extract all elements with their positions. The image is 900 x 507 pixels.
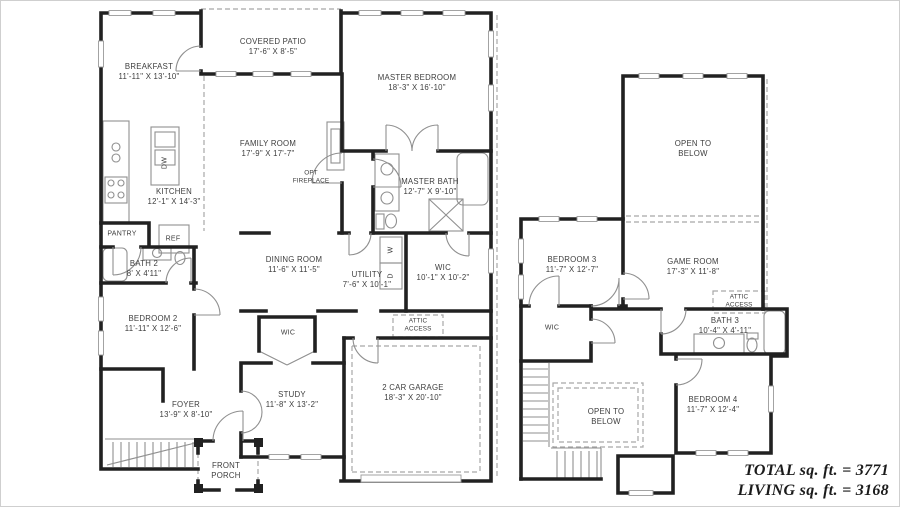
total-sqft-text: TOTAL sq. ft. = 3771 [744, 462, 889, 480]
floor-plan-drawing [1, 1, 899, 506]
dashed-lines [198, 9, 767, 481]
porch-columns [194, 438, 263, 493]
living-sqft-text: LIVING sq. ft. = 3168 [738, 482, 889, 500]
floor-plan-image: COVERED PATIO 17'-6" X 8'-5" BREAKFAST 1… [0, 0, 900, 507]
garage-door [361, 475, 461, 482]
fixture-lines [103, 121, 785, 479]
walls [101, 11, 787, 493]
windows [99, 11, 774, 496]
